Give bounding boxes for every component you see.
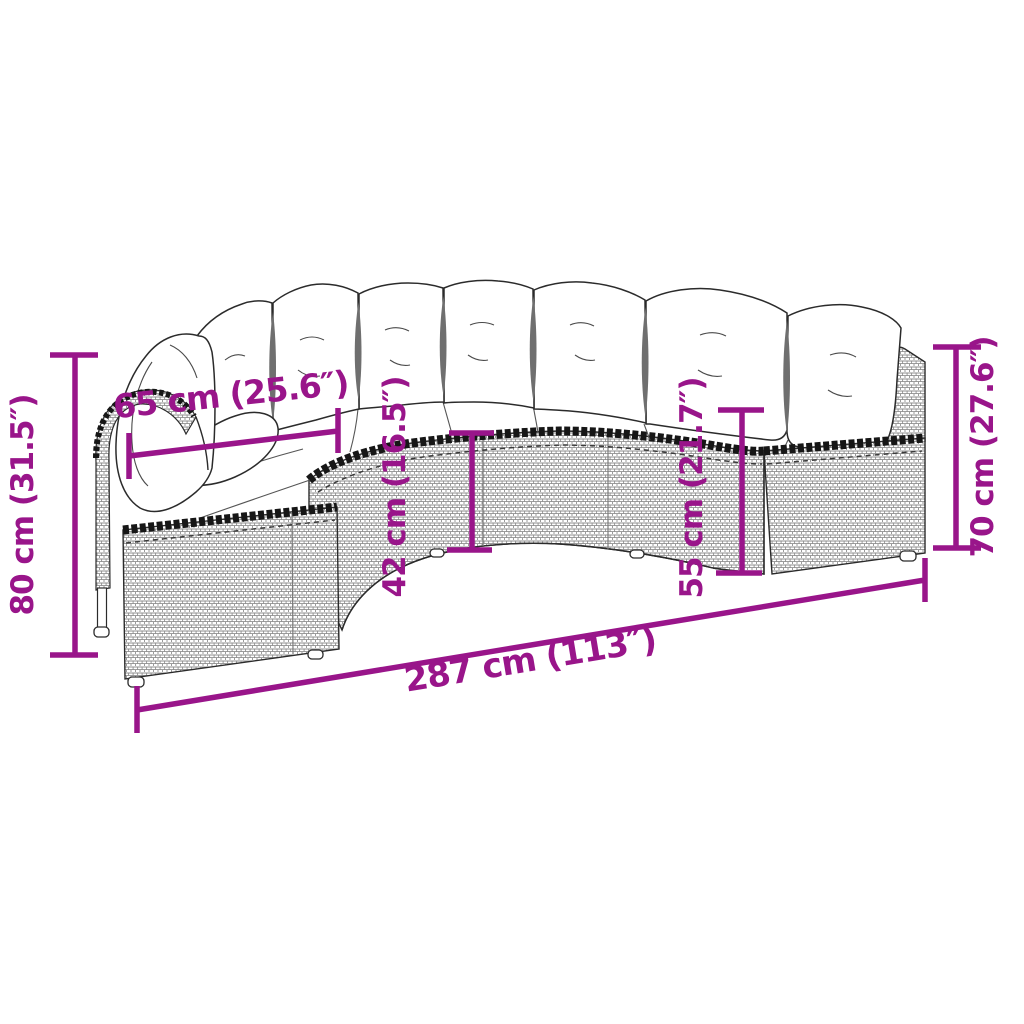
left-leg <box>98 588 107 628</box>
back-cushion-6 <box>646 288 787 440</box>
back-cushion-2 <box>273 284 359 431</box>
sofa-illustration <box>94 280 925 687</box>
dimension-diagram-page: 80 cm (31.5″) 65 cm (25.6″) 42 cm (16.5″… <box>0 0 1024 1024</box>
foot <box>128 677 144 687</box>
sofa-dimension-diagram: 80 cm (31.5″) 65 cm (25.6″) 42 cm (16.5″… <box>0 0 1024 1024</box>
back-cushion-5 <box>534 282 646 423</box>
dimension-height-left: 80 cm (31.5″) <box>5 355 98 655</box>
foot <box>430 549 444 557</box>
back-cushion-4 <box>444 280 534 408</box>
left-panel-face <box>123 507 339 679</box>
left-base-panel <box>123 507 339 679</box>
label-total-width: 287 cm (113″) <box>401 620 659 701</box>
label-back-height-inner: 55 cm (21.7″) <box>674 377 710 598</box>
label-height-left: 80 cm (31.5″) <box>5 394 41 615</box>
foot <box>900 551 916 561</box>
label-seat-height: 42 cm (16.5″) <box>377 376 413 597</box>
back-cushion-7 <box>787 305 901 455</box>
dimension-height-right: 70 cm (27.6″) <box>933 336 1001 557</box>
label-height-right: 70 cm (27.6″) <box>965 336 1001 557</box>
foot <box>94 627 109 637</box>
foot <box>308 650 323 659</box>
foot <box>630 550 644 558</box>
